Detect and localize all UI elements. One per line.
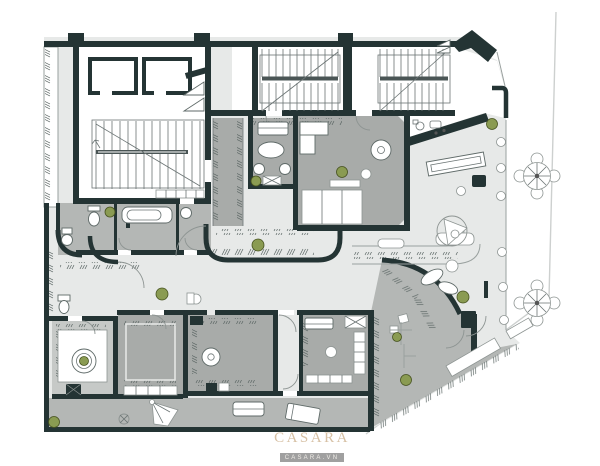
plant-icon [401, 375, 412, 386]
seat-icon [398, 314, 409, 324]
hatch-t1-top [56, 324, 106, 330]
sconce-icon [497, 164, 506, 173]
lounge-divider-wall [293, 115, 298, 230]
side-table-icon [187, 293, 194, 304]
outdoor-table-1 [514, 153, 560, 199]
floor-plan-drawing [0, 0, 600, 466]
basin-icon [62, 235, 73, 246]
hatch-t2-top [124, 320, 176, 326]
round-table-icon [202, 348, 220, 366]
plant-icon [487, 119, 498, 130]
stair-a-west-wall [252, 47, 258, 113]
sconce-icon [499, 283, 508, 292]
stool-icon [457, 187, 466, 196]
hatch-u-bottom [212, 248, 314, 255]
armchair-icon [254, 164, 265, 175]
hatch-corridor-left [213, 120, 219, 222]
side-cabinet-band [354, 332, 365, 374]
treatment-3-floor [188, 315, 273, 391]
t2-east-wall [183, 310, 188, 398]
t4-north-wall [297, 310, 372, 315]
lounge-2-south-wall [297, 225, 410, 231]
t34-south-wall [188, 391, 368, 396]
sconce-icon [500, 316, 509, 325]
cabinet-band [306, 375, 352, 383]
pouf-icon [446, 260, 458, 272]
hatch-west-strip [45, 48, 51, 206]
entry-step [506, 318, 533, 339]
sconce-icon [498, 248, 507, 257]
restroom-west-wall [56, 203, 60, 232]
oval-table-icon [258, 142, 284, 158]
brand-site-badge: CASARA.VN [280, 453, 344, 462]
plant-icon [251, 176, 261, 186]
bench-icon [378, 239, 404, 248]
pilaster-1 [68, 33, 84, 42]
pouf-icon [361, 169, 371, 179]
plant-icon [252, 239, 264, 251]
watermark: CASARA CASARA.VN [266, 431, 358, 464]
stair-south-wall [205, 110, 455, 116]
t4-west-wall [299, 310, 303, 393]
stool-icon [326, 347, 337, 358]
bathtub-icon [122, 207, 172, 223]
plant-icon [393, 333, 402, 342]
stair-b-handrail [380, 77, 448, 81]
stair-a-handrail [262, 77, 338, 81]
plant-icon [156, 288, 168, 300]
hatch-t2-bottom [124, 380, 176, 386]
fan-west-wall [368, 310, 374, 431]
equipment-block [206, 383, 217, 391]
toilet-icon [89, 212, 100, 226]
pilaster-2 [194, 33, 210, 42]
sink-icon [181, 208, 192, 219]
lounge-table-icon [472, 175, 486, 187]
toilet-icon [59, 301, 69, 314]
hatch-corridor-right [237, 120, 243, 222]
hatch-t3-left [192, 328, 198, 374]
plant-icon [105, 207, 115, 217]
equipment-block [190, 316, 203, 325]
credenza-icon [330, 180, 360, 187]
sconce-icon [497, 138, 506, 147]
umbrella-pole [535, 301, 539, 305]
wall-fin [484, 281, 488, 298]
lounge-2-east-wall [404, 115, 410, 230]
cabinet-icon [219, 383, 229, 391]
t3-north-wall [215, 310, 277, 315]
plant-icon [80, 357, 89, 366]
floor-plan-page: CASARA CASARA.VN [0, 0, 600, 466]
plant-icon [49, 417, 60, 428]
sconce-icon [497, 192, 506, 201]
t3-east-wall [273, 310, 278, 393]
sectional-sofa-arm [300, 122, 328, 135]
t1-east-wall [113, 316, 118, 398]
cistern-icon [62, 228, 72, 234]
toilet-tank-icon [88, 206, 100, 211]
plant-icon [457, 291, 469, 303]
plant-icon [337, 167, 348, 178]
umbrella-pole [535, 174, 539, 178]
understair-cabinets [156, 190, 204, 198]
hatch-corridor-south [60, 262, 140, 269]
lounge-1-west-wall [248, 115, 253, 188]
hatch-runner [354, 252, 458, 259]
palm-pot-icon [451, 230, 459, 238]
north-wall [44, 41, 462, 47]
cabinet-band [124, 386, 177, 395]
brand-logo: CASARA [266, 431, 358, 446]
round-table-icon [371, 140, 391, 160]
platform-icon [302, 190, 362, 224]
door-dot [434, 131, 437, 134]
core-west-wall [73, 47, 79, 203]
sofa-icon [305, 318, 333, 329]
light-source [150, 400, 155, 405]
fireplace [461, 311, 476, 328]
door-dot [442, 129, 445, 132]
hatch-fan-left [373, 316, 380, 420]
sofa-icon [258, 122, 288, 135]
armchair-icon [280, 164, 291, 175]
stair-divider-wall [343, 45, 352, 113]
pilaster-3 [338, 33, 353, 42]
